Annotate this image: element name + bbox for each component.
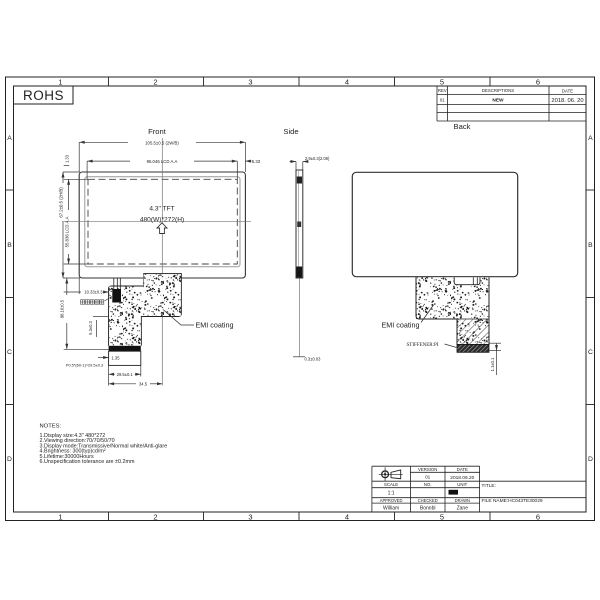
svg-text:34.5: 34.5: [139, 382, 148, 387]
svg-text:DATE: DATE: [562, 88, 573, 93]
svg-text:1.35: 1.35: [112, 356, 121, 361]
svg-text:105.5±0.5 (2W/B): 105.5±0.5 (2W/B): [145, 140, 179, 145]
svg-text:2018. 06. 20: 2018. 06. 20: [551, 98, 583, 104]
svg-text:DRAWN: DRAWN: [455, 498, 470, 503]
svg-text:DATE: DATE: [457, 467, 468, 472]
svg-text:95.046 LCD A.A: 95.046 LCD A.A: [147, 159, 178, 164]
svg-text:B: B: [588, 242, 593, 249]
svg-text:STIFFENER:PI: STIFFENER:PI: [407, 343, 439, 348]
svg-text:FILE NAME:HC043TE30029: FILE NAME:HC043TE30029: [482, 498, 543, 504]
svg-text:REV: REV: [438, 88, 447, 93]
svg-text:ROHS: ROHS: [23, 88, 64, 103]
svg-text:CHECKED: CHECKED: [418, 498, 438, 503]
svg-text:APPROVED: APPROVED: [380, 498, 403, 503]
svg-text:D: D: [588, 456, 593, 463]
svg-text:D: D: [7, 456, 12, 463]
svg-text:Bonnbl: Bonnbl: [420, 505, 436, 511]
svg-text:C: C: [588, 349, 593, 356]
svg-text:P0.5*(60-1)=29.5±0.3: P0.5*(60-1)=29.5±0.3: [66, 362, 103, 367]
svg-text:3: 3: [248, 513, 252, 522]
svg-text:29.5±0.1: 29.5±0.1: [117, 372, 134, 377]
svg-text:William: William: [383, 505, 399, 511]
svg-text:1.1±0.1: 1.1±0.1: [490, 357, 495, 371]
svg-text:5.33: 5.33: [252, 159, 261, 164]
svg-text:01: 01: [425, 475, 431, 480]
svg-text:EMI coating: EMI coating: [382, 321, 420, 330]
svg-text:10.33±0.3: 10.33±0.3: [84, 289, 103, 294]
svg-text:DESCRIPTIONS: DESCRIPTIONS: [482, 88, 514, 93]
svg-text:EMI coating: EMI coating: [196, 321, 234, 330]
svg-text:Back: Back: [454, 122, 471, 131]
svg-text:2: 2: [153, 513, 157, 522]
svg-text:1: 1: [58, 513, 62, 522]
svg-text:01: 01: [440, 97, 445, 102]
svg-text:2: 2: [153, 78, 157, 87]
svg-text:6.Unspecification tolerance ar: 6.Unspecification tolerance are ±0.2mm: [40, 459, 135, 465]
svg-text:2018.06.20: 2018.06.20: [450, 475, 474, 481]
svg-text:5.3±0.3: 5.3±0.3: [88, 320, 93, 334]
svg-text:1.33: 1.33: [64, 154, 69, 163]
svg-text:NEW: NEW: [492, 98, 504, 104]
svg-text:NOTES:: NOTES:: [40, 424, 62, 430]
svg-text:SCALE: SCALE: [384, 482, 398, 487]
svg-text:1: 1: [58, 78, 62, 87]
svg-text:67.2±0.5 (2H/B): 67.2±0.5 (2H/B): [59, 187, 64, 218]
svg-text:A: A: [7, 135, 12, 142]
svg-text:1:1: 1:1: [388, 490, 395, 496]
svg-text:6: 6: [536, 513, 540, 522]
svg-text:A: A: [588, 135, 593, 142]
svg-text:NO.: NO.: [424, 482, 432, 487]
svg-text:Side: Side: [283, 127, 298, 136]
svg-text:55.836 LCD A.A: 55.836 LCD A.A: [64, 216, 69, 247]
svg-text:Front: Front: [148, 127, 167, 136]
svg-text:6: 6: [536, 78, 540, 87]
svg-text:5: 5: [440, 513, 444, 522]
svg-text:98.16±0.5: 98.16±0.5: [59, 299, 64, 318]
svg-text:TITLE:: TITLE:: [482, 483, 496, 489]
svg-text:UNIT: UNIT: [457, 482, 467, 487]
svg-text:C: C: [7, 349, 12, 356]
svg-text:0.3±0.03: 0.3±0.03: [305, 357, 322, 362]
svg-text:3: 3: [248, 78, 252, 87]
svg-text:2.9±0.3(2.08): 2.9±0.3(2.08): [305, 156, 330, 161]
svg-text:B: B: [7, 242, 12, 249]
svg-text:Zane: Zane: [457, 505, 469, 511]
svg-text:4: 4: [345, 78, 349, 87]
svg-text:4: 4: [345, 513, 349, 522]
svg-text:VERSION: VERSION: [418, 467, 437, 472]
svg-text:5: 5: [440, 78, 444, 87]
svg-text:4.3" TFT: 4.3" TFT: [149, 206, 174, 213]
